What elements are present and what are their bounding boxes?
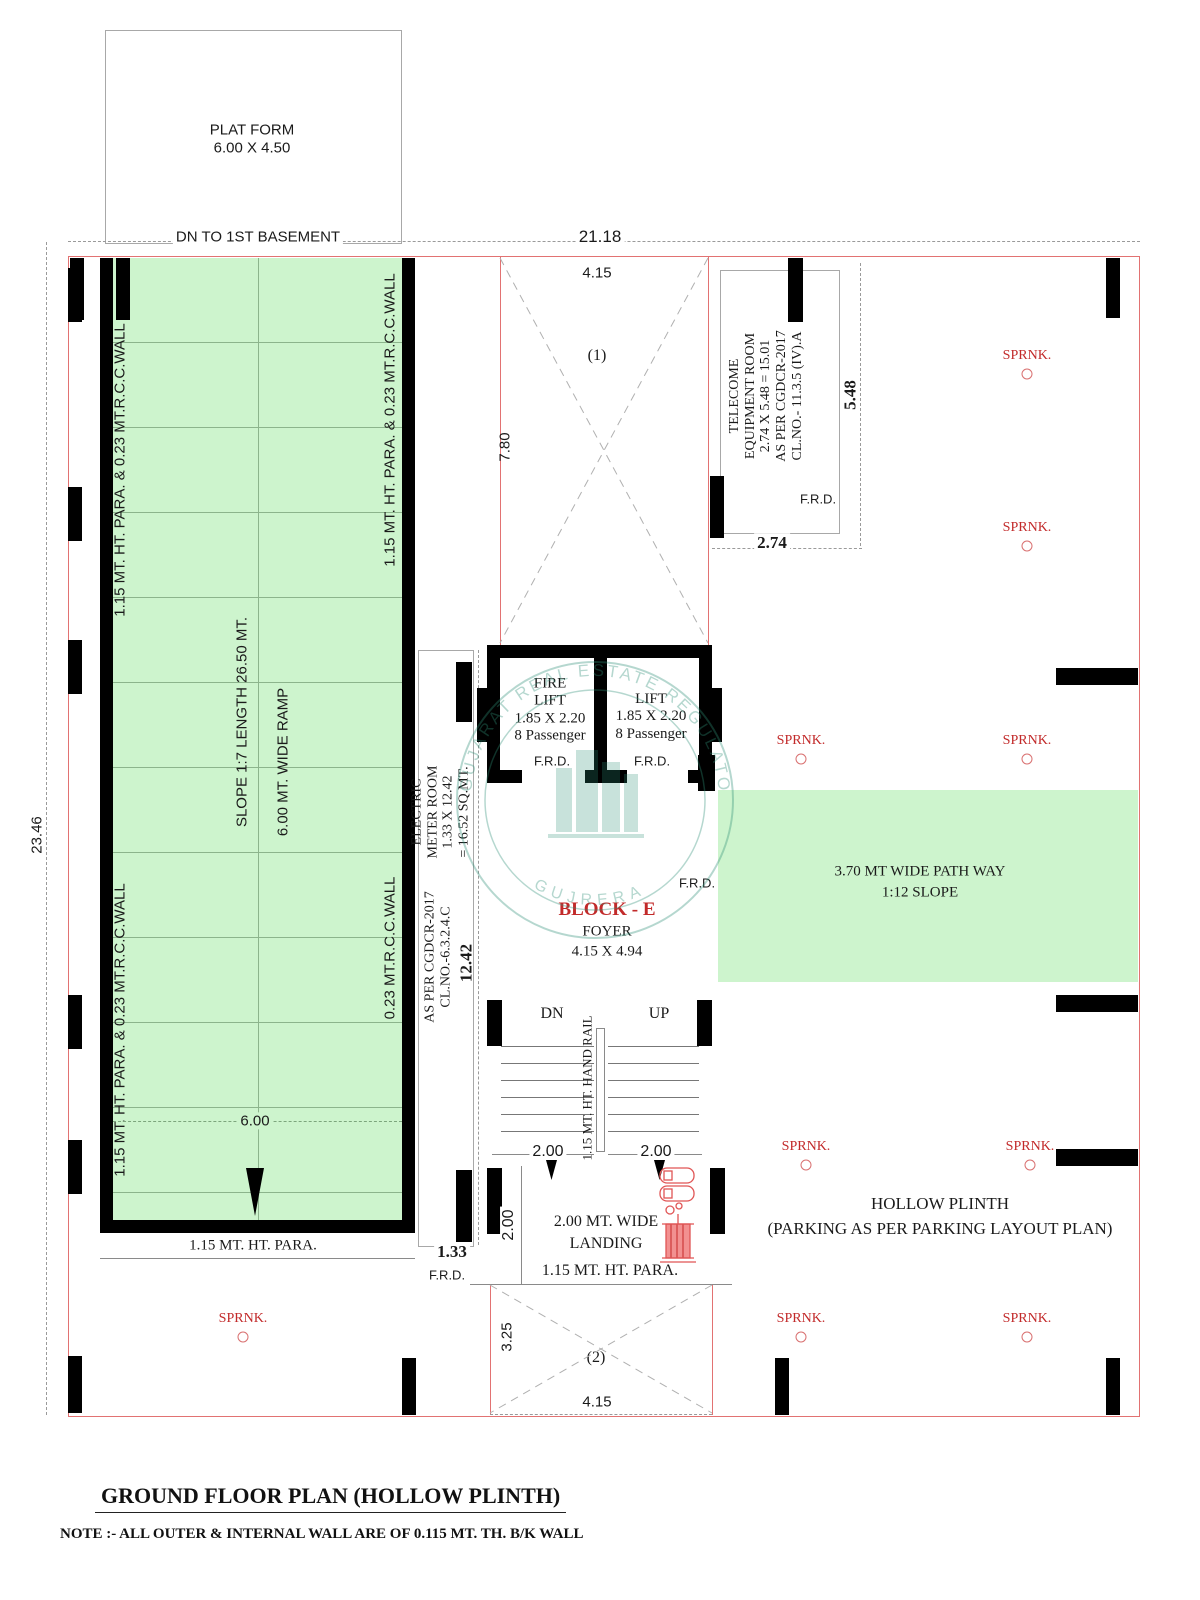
electric-meter-room-clause: AS PER CGDCR-2017 CL.NO.-6.3.2.4.C <box>422 891 453 1022</box>
hollow-plinth-sub: (PARKING AS PER PARKING LAYOUT PLAN) <box>768 1219 1113 1239</box>
telecom-room-label: TELECOME EQUIPMENT ROOM 2.74 X 5.48 = 15… <box>727 330 805 461</box>
wall-segment <box>456 1170 472 1242</box>
sprinkler-label: SPRNK. <box>1006 1139 1055 1155</box>
foyer-size: 4.15 X 4.94 <box>572 943 643 960</box>
column <box>68 995 82 1049</box>
sprinkler-icon <box>796 1332 807 1343</box>
wall-segment <box>1056 995 1138 1012</box>
column <box>698 755 715 791</box>
lift-wall-center <box>594 658 607 770</box>
floor-plan-canvas: PLAT FORM 6.00 X 4.50 21.18 DN TO 1ST BA… <box>0 0 1200 1600</box>
ramp-slope-label: SLOPE 1:7 LENGTH 26.50 MT. <box>235 617 252 827</box>
sprinkler-icon <box>238 1332 249 1343</box>
plan-note: NOTE :- ALL OUTER & INTERNAL WALL ARE OF… <box>60 1526 583 1543</box>
sprinkler-label: SPRNK. <box>1003 520 1052 536</box>
dim-total-width: 21.18 <box>576 227 625 247</box>
landing-label: 2.00 MT. WIDE <box>554 1213 658 1231</box>
column <box>68 487 82 541</box>
column <box>68 268 82 322</box>
column <box>487 1000 502 1046</box>
dim-top-bay: 4.15 <box>582 264 611 281</box>
column <box>1106 1358 1120 1415</box>
landing-parapet-label: 1.15 MT. HT. PARA. <box>542 1262 678 1280</box>
ramp-width-label: 6.00 MT. WIDE RAMP <box>276 688 293 836</box>
block-name: BLOCK - E <box>558 899 655 921</box>
column <box>775 1358 789 1415</box>
sprinkler-icon <box>1022 1332 1033 1343</box>
handrail-label: 1.15 MT. HT. HAND RAIL <box>581 1015 596 1160</box>
sprinkler-icon <box>801 1160 812 1171</box>
dim-void1-height: 7.80 <box>498 432 515 461</box>
frd-label: F.R.D. <box>429 1269 465 1284</box>
pathway-label: 3.70 MT WIDE PATH WAY <box>835 863 1006 880</box>
void2-right-line <box>712 1285 713 1415</box>
wall-segment <box>1056 1149 1138 1166</box>
dim-telecom-width: 2.74 <box>754 533 790 553</box>
lift-wall-right <box>699 658 712 770</box>
dim-line-telecom-height <box>860 263 861 546</box>
column <box>68 1140 82 1194</box>
sprinkler-label: SPRNK. <box>777 1311 826 1327</box>
dim-meter-length: 12.42 <box>456 944 475 982</box>
sprinkler-label: SPRNK. <box>782 1139 831 1155</box>
lift-label: LIFT 1.85 X 2.20 8 Passenger <box>615 691 686 743</box>
dim-ramp-width: 6.00 <box>237 1112 272 1129</box>
dim-line-landing <box>521 1166 522 1284</box>
column <box>402 1358 416 1415</box>
frd-label: F.R.D. <box>534 755 570 770</box>
dim-void2-height: 3.25 <box>500 1322 517 1351</box>
wall-segment <box>1056 668 1138 685</box>
sprinkler-icon <box>1025 1160 1036 1171</box>
ramp <box>100 258 415 1233</box>
stairs-dn-label: DN <box>540 1005 563 1023</box>
ramp-wall-label: 1.15 MT. HT. PARA. & 0.23 MT.R.C.C.WALL <box>113 883 130 1176</box>
plan-title: GROUND FLOOR PLAN (HOLLOW PLINTH) <box>95 1483 566 1513</box>
electric-meter-room-label: ELECTRIC METER ROOM 1.33 X 12.42 = 16.52… <box>410 766 473 859</box>
ramp-parapet-label: 1.15 MT. HT. PARA. <box>189 1237 317 1254</box>
column <box>68 640 82 694</box>
ramp-wall-label: 1.15 MT. HT. PARA. & 0.23 MT.R.C.C.WALL <box>113 323 130 616</box>
stairs-up-label: UP <box>649 1005 669 1023</box>
platform-size: 6.00 X 4.50 <box>214 139 291 156</box>
frd-label: F.R.D. <box>679 877 715 892</box>
sprinkler-label: SPRNK. <box>1003 348 1052 364</box>
platform-label: PLAT FORM <box>210 121 294 138</box>
frd-label: F.R.D. <box>800 493 836 508</box>
lift-wall-bump <box>712 688 722 742</box>
dim-total-height: 23.46 <box>30 816 47 854</box>
sprinkler-icon <box>796 754 807 765</box>
column <box>1106 258 1120 318</box>
column <box>788 258 803 322</box>
lift-wall-bottom <box>585 770 627 783</box>
lift-wall-top <box>487 645 712 658</box>
pathway-slope-label: 1:12 SLOPE <box>882 884 958 901</box>
sprinkler-label: SPRNK. <box>219 1311 268 1327</box>
void2-left-line <box>490 1285 491 1415</box>
void2-label: (2) <box>587 1349 606 1367</box>
dn-to-basement-label: DN TO 1ST BASEMENT <box>173 228 343 245</box>
void1-label: (1) <box>588 347 607 365</box>
stair-flight-up <box>608 1030 699 1136</box>
column <box>697 1000 712 1046</box>
sprinkler-label: SPRNK. <box>777 733 826 749</box>
column <box>68 1356 82 1413</box>
column <box>710 1168 725 1234</box>
ramp-parapet-line <box>100 1258 415 1259</box>
sprinkler-icon <box>1022 541 1033 552</box>
column <box>116 258 130 320</box>
sprinkler-label: SPRNK. <box>1003 1311 1052 1327</box>
lift-wall-left <box>487 658 500 770</box>
dim-flight-right: 2.00 <box>637 1143 674 1161</box>
ramp-center-line <box>258 258 259 1220</box>
lift-wall-bottom <box>487 770 522 783</box>
landing-edge-line <box>470 1284 732 1285</box>
landing-label2: LANDING <box>570 1235 643 1253</box>
dim-landing-depth: 2.00 <box>500 1206 518 1243</box>
sprinkler-icon <box>1022 369 1033 380</box>
fire-lift-label: FIRE LIFT 1.85 X 2.20 8 Passenger <box>514 676 585 745</box>
wall-segment <box>456 662 472 722</box>
void2-bottom-line <box>490 1414 712 1415</box>
column <box>710 476 724 538</box>
hollow-plinth-label: HOLLOW PLINTH <box>871 1194 1009 1214</box>
ramp-wall-label-short: 0.23 MT.R.C.C.WALL <box>383 877 400 1020</box>
foyer-label: FOYER <box>582 923 631 940</box>
handrail <box>596 1028 605 1152</box>
dim-telecom-height: 5.48 <box>840 380 859 410</box>
sprinkler-label: SPRNK. <box>1003 733 1052 749</box>
sprinkler-icon <box>1022 754 1033 765</box>
dim-void2-width: 4.15 <box>582 1393 611 1410</box>
lift-wall-bump <box>477 688 487 742</box>
frd-label: F.R.D. <box>634 755 670 770</box>
void1-right-line <box>708 256 709 645</box>
ramp-wall-label: 1.15 MT. HT. PARA. & 0.23 MT.R.C.C.WALL <box>383 273 400 566</box>
dim-flight-left: 2.00 <box>529 1143 566 1161</box>
dim-meter-width: 1.33 <box>434 1242 470 1262</box>
